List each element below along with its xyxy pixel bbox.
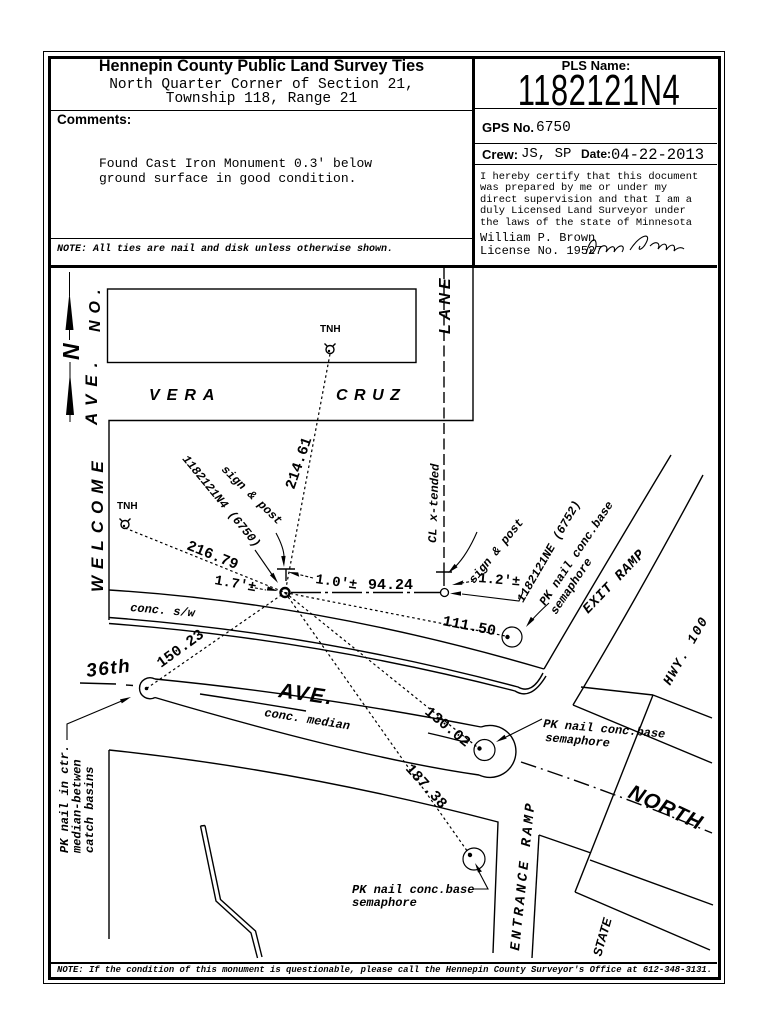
svg-text:36th: 36th	[85, 656, 132, 682]
svg-text:STATE: STATE	[590, 916, 614, 958]
svg-text:conc. median: conc. median	[263, 706, 351, 733]
svg-text:94.24: 94.24	[368, 577, 413, 594]
svg-text:HWY. 100: HWY. 100	[661, 614, 712, 688]
svg-text:130.02: 130.02	[421, 704, 473, 751]
svg-text:AVE.: AVE.	[82, 355, 101, 426]
svg-text:LANE: LANE	[437, 274, 454, 334]
svg-text:VERA: VERA	[149, 387, 221, 404]
svg-text:150.23: 150.23	[154, 627, 208, 673]
svg-text:CL x-tended: CL x-tended	[426, 463, 443, 543]
svg-text:EXIT RAMP: EXIT RAMP	[580, 547, 649, 618]
svg-text:AVE.: AVE.	[276, 679, 335, 710]
svg-text:1.7'±: 1.7'±	[213, 573, 257, 596]
svg-text:NORTH: NORTH	[625, 781, 707, 835]
svg-text:214.61: 214.61	[283, 435, 317, 492]
svg-text:PK nail conc.base: PK nail conc.base	[352, 883, 474, 897]
svg-text:TNH: TNH	[320, 324, 341, 335]
svg-text:semaphore: semaphore	[352, 896, 417, 910]
svg-text:216.79: 216.79	[184, 538, 240, 574]
svg-text:CRUZ: CRUZ	[336, 387, 406, 404]
svg-text:1.2'±: 1.2'±	[478, 571, 521, 591]
svg-text:catch basins: catch basins	[83, 767, 97, 853]
svg-text:111.50: 111.50	[441, 613, 497, 640]
svg-text:NO.: NO.	[87, 283, 104, 332]
svg-text:1.0'±: 1.0'±	[314, 572, 358, 594]
svg-text:conc. s/w: conc. s/w	[130, 601, 197, 621]
svg-text:ENTRANCE RAMP: ENTRANCE RAMP	[508, 800, 540, 952]
svg-text:N: N	[58, 343, 84, 360]
svg-text:TNH: TNH	[117, 501, 138, 512]
svg-text:WELCOME: WELCOME	[88, 454, 107, 592]
